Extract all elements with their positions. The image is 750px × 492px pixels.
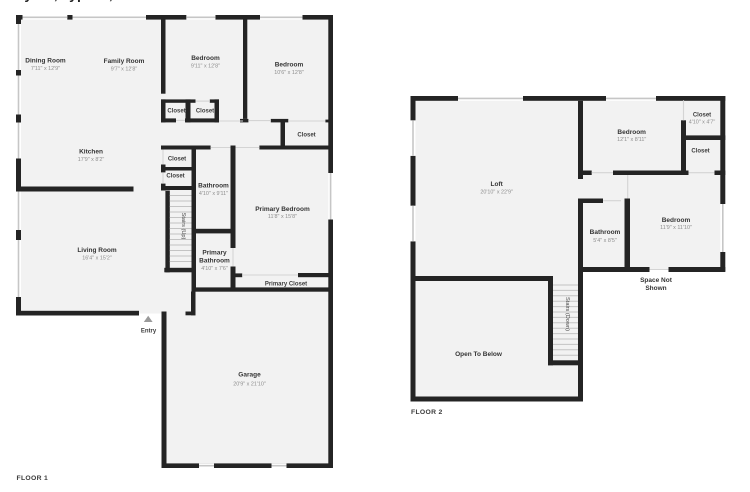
svg-text:Closet: Closet	[693, 113, 711, 119]
svg-text:10'6" x 12'8": 10'6" x 12'8"	[274, 70, 304, 76]
svg-text:Closet: Closet	[166, 174, 184, 180]
svg-text:4'10" x 9'11": 4'10" x 9'11"	[199, 191, 228, 197]
svg-text:Closet: Closet	[167, 109, 185, 115]
svg-text:7'11" x 12'9": 7'11" x 12'9"	[31, 66, 60, 72]
svg-text:Primary Bedroom: Primary Bedroom	[255, 206, 310, 213]
svg-text:Bedroom: Bedroom	[191, 55, 220, 62]
svg-text:4'10" x 7'6": 4'10" x 7'6"	[201, 266, 228, 272]
svg-text:Bathroom: Bathroom	[199, 257, 230, 264]
svg-text:Bedroom: Bedroom	[275, 61, 304, 68]
svg-text:Dining Room: Dining Room	[25, 57, 66, 64]
svg-text:Open To Below: Open To Below	[455, 351, 503, 358]
svg-text:12'1" x 8'11": 12'1" x 8'11"	[617, 137, 646, 143]
svg-text:FLOOR 1: FLOOR 1	[17, 475, 49, 482]
svg-text:20'9" x 21'10": 20'9" x 21'10"	[233, 381, 266, 387]
svg-text:FLOOR 2: FLOOR 2	[411, 409, 443, 416]
svg-text:Bathroom: Bathroom	[590, 229, 621, 236]
svg-text:4'10" x 4'7": 4'10" x 4'7"	[689, 120, 716, 126]
svg-text:Bedroom: Bedroom	[617, 129, 646, 136]
svg-text:Bathroom: Bathroom	[198, 182, 229, 189]
svg-text:Living Room: Living Room	[77, 247, 117, 254]
svg-text:Entry: Entry	[141, 329, 157, 335]
svg-text:Bedroom: Bedroom	[662, 217, 691, 224]
svg-text:Stairs (Up): Stairs (Up)	[180, 213, 186, 240]
svg-text:Primary: Primary	[202, 249, 227, 256]
svg-text:Kitchen: Kitchen	[79, 149, 103, 156]
svg-text:5'4" x 8'5": 5'4" x 8'5"	[593, 238, 617, 244]
svg-text:Primary Closet: Primary Closet	[265, 281, 307, 287]
svg-text:Shown: Shown	[645, 285, 666, 292]
svg-text:Closet: Closet	[196, 109, 214, 115]
svg-text:Closet: Closet	[297, 133, 315, 139]
svg-text:Layout, Typical, Ma: Layout, Typical, Ma	[8, 0, 136, 2]
svg-text:9'11" x 12'8": 9'11" x 12'8"	[191, 63, 220, 69]
svg-text:9'7" x 12'8": 9'7" x 12'8"	[111, 66, 138, 72]
svg-text:11'9" x 11'10": 11'9" x 11'10"	[660, 225, 692, 231]
svg-text:Loft: Loft	[491, 181, 504, 188]
svg-text:17'9" x 8'2": 17'9" x 8'2"	[78, 157, 105, 163]
svg-text:11'8" x 15'8": 11'8" x 15'8"	[268, 214, 297, 220]
svg-text:20'10" x 22'9": 20'10" x 22'9"	[480, 189, 513, 195]
svg-text:Closet: Closet	[168, 157, 186, 163]
svg-text:Family Room: Family Room	[104, 58, 145, 65]
svg-text:Garage: Garage	[238, 371, 261, 378]
svg-text:16'4" x 15'2": 16'4" x 15'2"	[82, 255, 112, 261]
svg-text:Space Not: Space Not	[640, 277, 673, 284]
svg-text:Stairs (Down): Stairs (Down)	[564, 297, 570, 331]
svg-text:Closet: Closet	[691, 149, 709, 155]
